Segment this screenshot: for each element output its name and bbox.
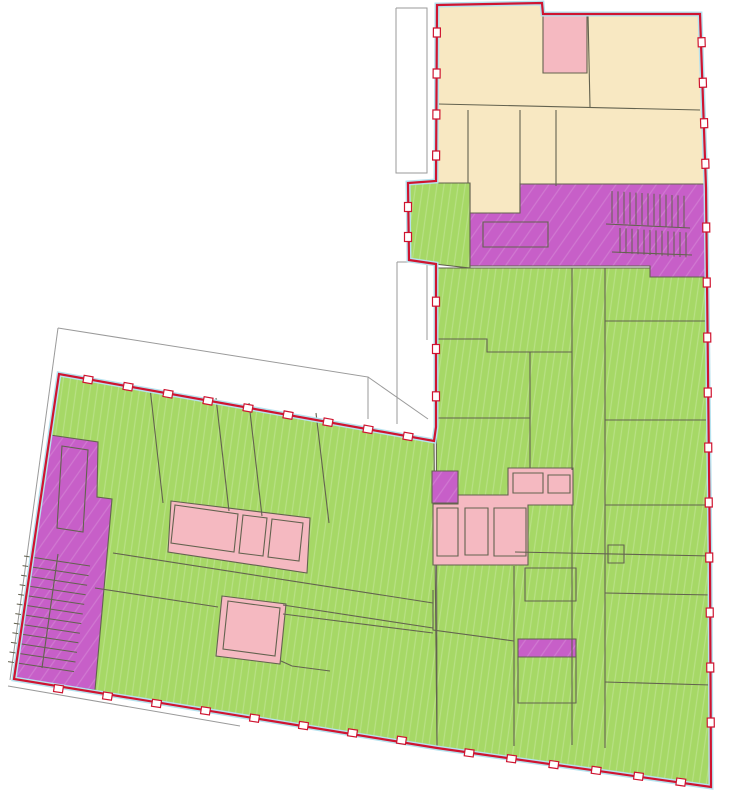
teeth-bottom-right-edge-tooth	[634, 772, 644, 780]
teeth-right-edge-tooth	[705, 443, 712, 452]
teeth-upper-right-edge-tooth	[702, 159, 709, 168]
entry-green-upper	[408, 183, 470, 268]
shaft-purple-center	[432, 471, 458, 503]
teeth-right-edge-tooth	[703, 223, 710, 232]
teeth-bottom-left-edge-tooth	[250, 714, 260, 722]
teeth-right-edge-tooth	[707, 718, 714, 727]
teeth-top-left-wing-edge-tooth	[283, 411, 293, 419]
teeth-top-left-wing-edge-tooth	[203, 397, 213, 405]
teeth-rightwing-left-edge-tooth	[433, 345, 440, 354]
teeth-bottom-left-edge-tooth	[152, 699, 162, 707]
teeth-upper-left-edge-tooth	[433, 151, 440, 160]
teeth-bottom-left-edge-tooth	[299, 721, 309, 729]
teeth-bottom-right-edge-tooth	[591, 766, 601, 774]
teeth-rightwing-left-edge-tooth	[433, 297, 440, 306]
teeth-top-left-wing-edge-tooth	[403, 432, 413, 440]
teeth-rightwing-left-edge-tooth	[433, 392, 440, 401]
neighbor-band-right-extension	[368, 377, 428, 419]
shaft-purple-lower	[518, 639, 576, 657]
teeth-bottom-right-edge-tooth	[464, 749, 474, 757]
teeth-top-left-wing-edge-tooth	[123, 382, 133, 390]
teeth-upper-left-edge-tooth	[433, 69, 440, 78]
teeth-bottom-left-edge-tooth	[201, 707, 211, 715]
teeth-top-left-wing-edge-tooth	[83, 375, 93, 383]
teeth-upper-left-edge-tooth	[433, 110, 440, 119]
floor-plan-svg	[0, 0, 730, 804]
teeth-right-edge-tooth	[705, 498, 712, 507]
teeth-upper-right-edge-tooth	[700, 119, 707, 128]
teeth-bottom-right-edge-tooth	[507, 755, 517, 763]
teeth-bottom-right-edge-tooth	[549, 761, 559, 769]
neighbor-block-top-left	[396, 8, 427, 173]
floor-plan	[0, 0, 730, 804]
teeth-bottom-left-edge-tooth	[348, 729, 358, 737]
teeth-right-edge-tooth	[706, 553, 713, 562]
teeth-bottom-left-edge-tooth	[103, 692, 113, 700]
teeth-bottom-left-edge-tooth	[397, 736, 407, 744]
teeth-top-left-wing-edge-tooth	[163, 390, 173, 398]
teeth-right-edge-tooth	[704, 388, 711, 397]
teeth-upper-right-edge-tooth	[698, 38, 705, 47]
teeth-right-edge-tooth	[703, 278, 710, 287]
teeth-upper-left-edge-tooth	[433, 28, 440, 37]
room-pink-top	[543, 14, 587, 73]
teeth-top-left-wing-edge-tooth	[323, 418, 333, 426]
teeth-right-edge-tooth	[706, 608, 713, 617]
teeth-right-edge-tooth	[704, 333, 711, 342]
teeth-right-edge-tooth	[707, 663, 714, 672]
teeth-bottom-left-edge-tooth	[54, 685, 64, 693]
teeth-bottom-right-edge-tooth	[676, 778, 686, 786]
teeth-entry-left-edge-tooth	[405, 233, 412, 242]
teeth-top-left-wing-edge-tooth	[363, 425, 373, 433]
teeth-top-left-wing-edge-tooth	[243, 404, 253, 412]
teeth-upper-right-edge-tooth	[699, 78, 706, 87]
teeth-entry-left-edge-tooth	[405, 203, 412, 212]
